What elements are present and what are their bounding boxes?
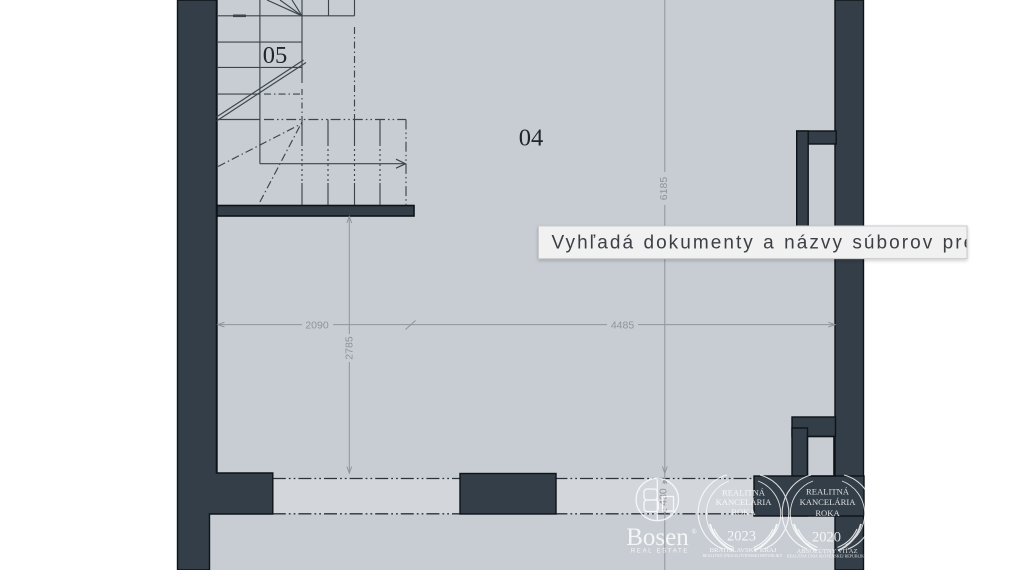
svg-text:2020: 2020 [812,530,841,546]
svg-text:ROKA: ROKA [815,508,840,518]
svg-text:REAL ESTATE: REAL ESTATE [631,549,689,555]
svg-text:KANCELÁRIA: KANCELÁRIA [800,497,857,507]
svg-text:2023: 2023 [727,529,756,545]
svg-text:04: 04 [519,125,544,152]
svg-text:2090: 2090 [305,320,329,332]
svg-text:Vyhľadá dokumenty a názvy súbo: Vyhľadá dokumenty a názvy súborov pre [552,233,977,254]
svg-text:4485: 4485 [611,320,635,332]
svg-text:®: ® [692,528,698,536]
svg-text:Bosen: Bosen [626,524,689,551]
svg-text:REALITNÁ ÚNIA SLOVENSKEJ REPUB: REALITNÁ ÚNIA SLOVENSKEJ REPUBLIKY [702,553,782,558]
svg-text:REALITNÁ: REALITNÁ [806,486,850,496]
svg-text:REALITNÁ: REALITNÁ [722,487,766,497]
svg-text:ROKA: ROKA [731,507,756,517]
svg-text:REALITNÁ ÚNIA SLOVENSKEJ REPUB: REALITNÁ ÚNIA SLOVENSKEJ REPUBLIKY [787,554,867,559]
svg-text:KANCELÁRIA: KANCELÁRIA [716,497,773,507]
svg-text:6185: 6185 [658,177,670,201]
svg-text:2785: 2785 [343,336,355,360]
svg-text:05: 05 [263,42,288,69]
